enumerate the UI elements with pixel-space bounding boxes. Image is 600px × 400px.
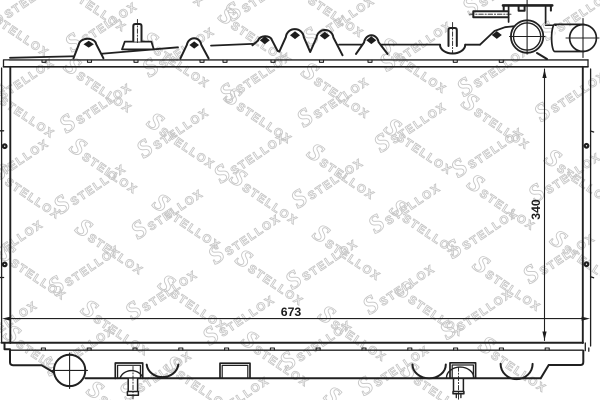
svg-text:340: 340 <box>529 199 543 220</box>
svg-text:673: 673 <box>281 305 302 319</box>
